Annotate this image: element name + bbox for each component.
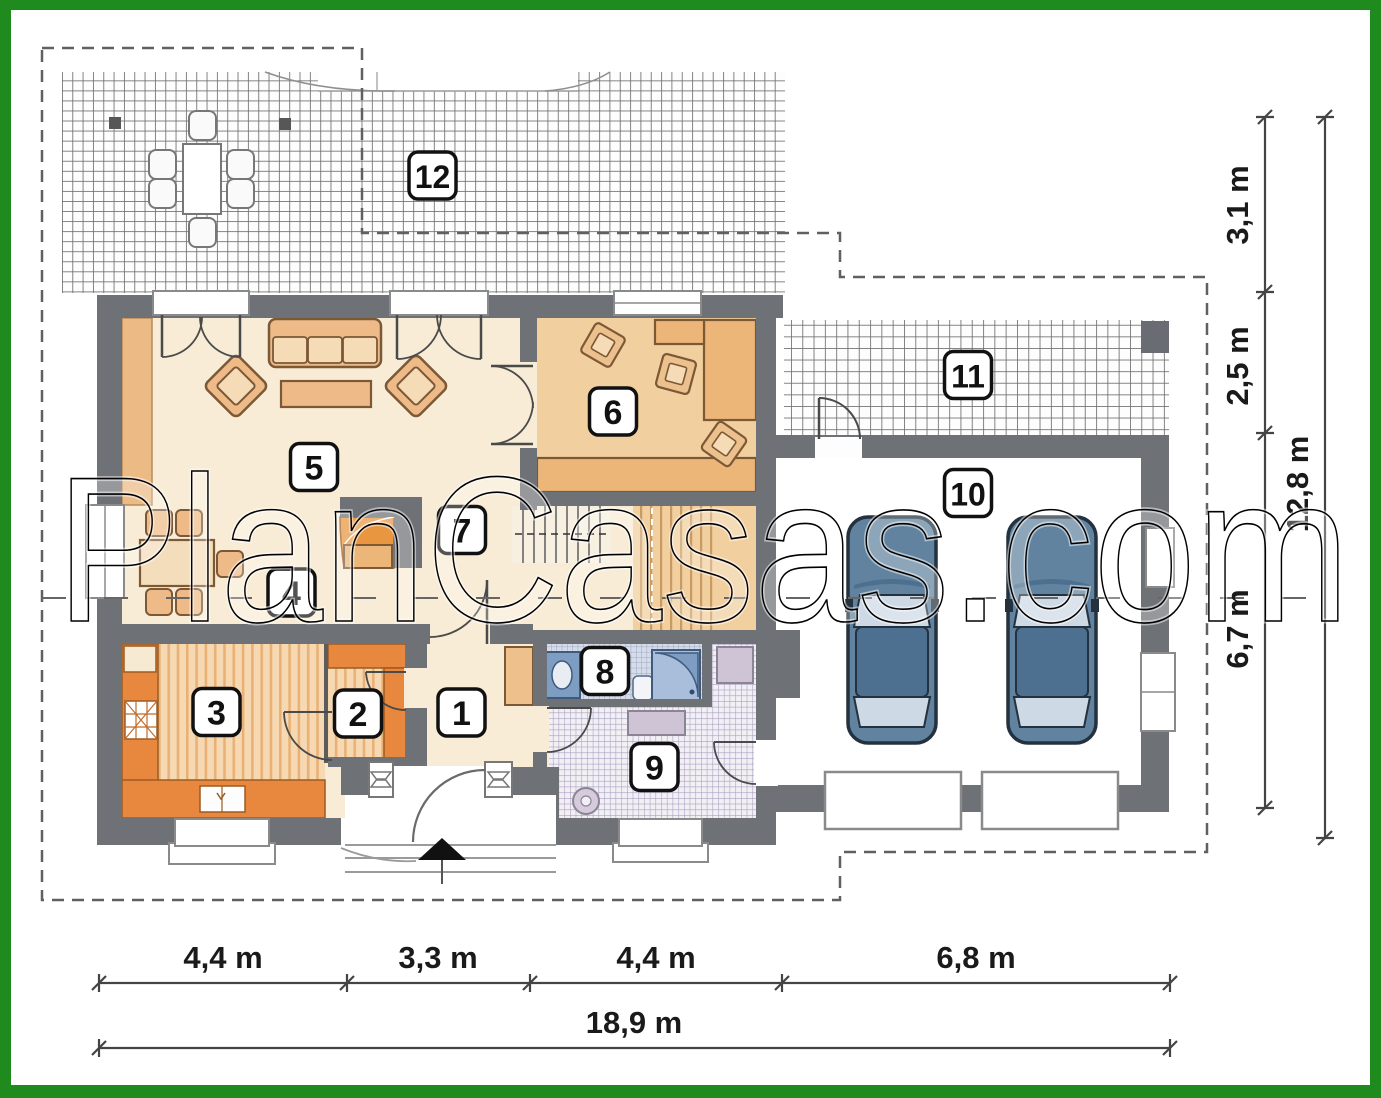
svg-text:12: 12: [415, 159, 451, 195]
svg-text:6: 6: [604, 394, 623, 432]
svg-text:1: 1: [452, 695, 471, 733]
svg-text:4,4 m: 4,4 m: [616, 940, 695, 975]
svg-text:18,9 m: 18,9 m: [586, 1005, 683, 1040]
svg-text:3,1 m: 3,1 m: [1220, 165, 1255, 244]
svg-text:2: 2: [349, 696, 368, 734]
svg-text:6,8 m: 6,8 m: [936, 940, 1015, 975]
svg-text:PlanCasas.com: PlanCasas.com: [56, 434, 1350, 665]
svg-text:3: 3: [207, 695, 226, 733]
svg-text:2,5 m: 2,5 m: [1220, 326, 1255, 405]
svg-text:3,3 m: 3,3 m: [398, 940, 477, 975]
svg-text:11: 11: [951, 359, 985, 395]
svg-text:4,4 m: 4,4 m: [183, 940, 262, 975]
svg-text:9: 9: [645, 750, 664, 788]
